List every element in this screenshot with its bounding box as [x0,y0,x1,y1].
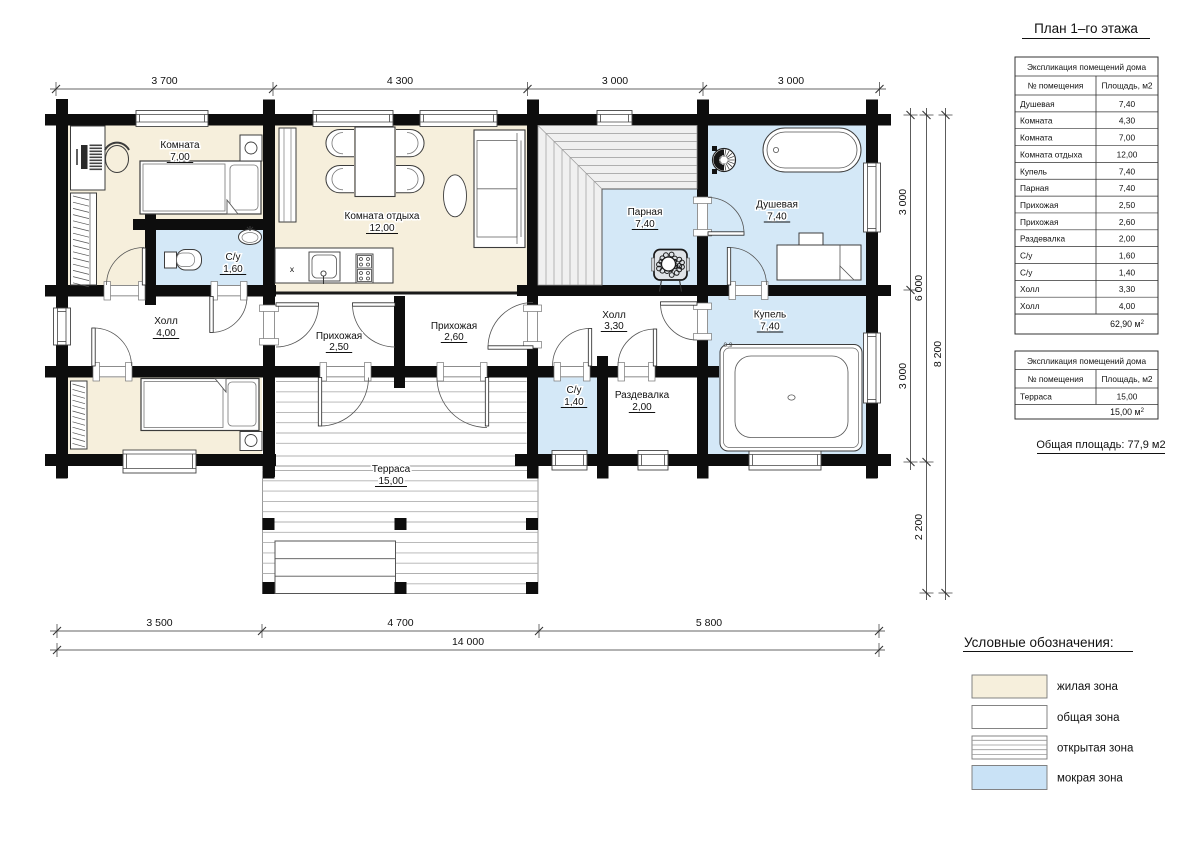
svg-text:Терраса: Терраса [1020,392,1052,402]
svg-text:общая зона: общая зона [1057,712,1120,724]
svg-text:Купель: Купель [1020,166,1047,176]
svg-text:Душевая: Душевая [756,200,798,211]
svg-text:С/у: С/у [1020,251,1033,261]
svg-text:План 1–го этажа: План 1–го этажа [1034,21,1138,36]
svg-text:Холл: Холл [1020,301,1040,311]
svg-text:3 700: 3 700 [151,75,177,87]
svg-text:3 000: 3 000 [897,363,909,389]
svg-text:Терраса: Терраса [372,464,411,475]
svg-text:7,40: 7,40 [1119,99,1136,109]
svg-text:2,00: 2,00 [1119,234,1136,244]
svg-text:3,30: 3,30 [1119,284,1136,294]
svg-text:7,40: 7,40 [760,322,780,333]
svg-text:2,60: 2,60 [1119,217,1136,227]
svg-text:Холл: Холл [1020,284,1040,294]
svg-text:Прихожая: Прихожая [1020,217,1058,227]
svg-text:Раздевалка: Раздевалка [1020,234,1065,244]
svg-text:14 000: 14 000 [452,636,484,648]
svg-text:2 200: 2 200 [913,514,925,540]
svg-text:1,40: 1,40 [1119,267,1136,277]
svg-text:4,30: 4,30 [1119,116,1136,126]
svg-text:№ помещения: № помещения [1028,81,1084,91]
svg-text:7,00: 7,00 [1119,133,1136,143]
svg-text:15,00: 15,00 [1117,392,1138,402]
svg-text:8 200: 8 200 [932,341,944,367]
svg-text:Условные обозначения:: Условные обозначения: [964,635,1114,650]
svg-text:15,00: 15,00 [378,476,403,487]
svg-text:6 000: 6 000 [913,275,925,301]
svg-text:0,9: 0,9 [723,342,732,349]
svg-text:3 000: 3 000 [602,75,628,87]
svg-text:С/у: С/у [567,385,582,396]
svg-text:3,30: 3,30 [604,321,624,332]
svg-text:4,00: 4,00 [156,328,176,339]
svg-text:Холл: Холл [602,310,626,321]
svg-text:Экспликация помещений дома: Экспликация помещений дома [1027,356,1147,366]
svg-text:№ помещения: № помещения [1028,374,1084,384]
svg-text:Душевая: Душевая [1020,99,1055,109]
svg-text:3 000: 3 000 [778,75,804,87]
svg-text:3 500: 3 500 [146,617,172,629]
svg-text:1,60: 1,60 [223,264,243,275]
svg-text:7,40: 7,40 [1119,183,1136,193]
svg-text:открытая зона: открытая зона [1057,743,1134,755]
svg-text:12,00: 12,00 [1117,149,1138,159]
svg-text:15,00 м2: 15,00 м2 [1110,407,1145,417]
svg-text:Экспликация помещений дома: Экспликация помещений дома [1027,62,1147,72]
svg-text:Раздевалка: Раздевалка [615,390,670,401]
svg-text:7,40: 7,40 [1119,166,1136,176]
svg-text:62,90 м2: 62,90 м2 [1110,319,1145,329]
svg-text:Площадь, м2: Площадь, м2 [1101,81,1152,91]
svg-text:Комната отдыха: Комната отдыха [345,211,420,222]
svg-text:3 000: 3 000 [897,189,909,215]
svg-text:Комната отдыха: Комната отдыха [1020,149,1083,159]
svg-text:2,00: 2,00 [632,402,652,413]
svg-text:Площадь, м2: Площадь, м2 [1101,374,1152,384]
svg-text:2,50: 2,50 [1119,200,1136,210]
svg-text:4 300: 4 300 [387,75,413,87]
svg-text:1,60: 1,60 [1119,251,1136,261]
svg-text:Общая площадь: 77,9 м2: Общая площадь: 77,9 м2 [1036,439,1165,451]
svg-text:жилая зона: жилая зона [1057,681,1119,693]
svg-text:Комната: Комната [1020,133,1053,143]
svg-text:7,00: 7,00 [170,152,190,163]
svg-text:2,50: 2,50 [329,342,349,353]
svg-text:1,40: 1,40 [564,397,584,408]
svg-text:С/у: С/у [1020,267,1033,277]
svg-text:Прихожая: Прихожая [431,321,477,332]
svg-text:4,00: 4,00 [1119,301,1136,311]
svg-text:С/у: С/у [226,252,241,263]
svg-text:Комната: Комната [1020,116,1053,126]
svg-text:Купель: Купель [754,310,787,321]
svg-text:Комната: Комната [160,140,200,151]
svg-text:Холл: Холл [154,316,178,327]
svg-text:2,60: 2,60 [444,332,464,343]
svg-text:12,00: 12,00 [369,223,394,234]
svg-text:мокрая зона: мокрая зона [1057,773,1123,785]
svg-text:Парная: Парная [628,207,663,218]
svg-text:5 800: 5 800 [696,617,722,629]
svg-text:Прихожая: Прихожая [316,331,362,342]
svg-text:Парная: Парная [1020,183,1049,193]
svg-text:Прихожая: Прихожая [1020,200,1058,210]
svg-text:4 700: 4 700 [387,617,413,629]
svg-text:7,40: 7,40 [767,212,787,223]
svg-text:7,40: 7,40 [635,219,655,230]
